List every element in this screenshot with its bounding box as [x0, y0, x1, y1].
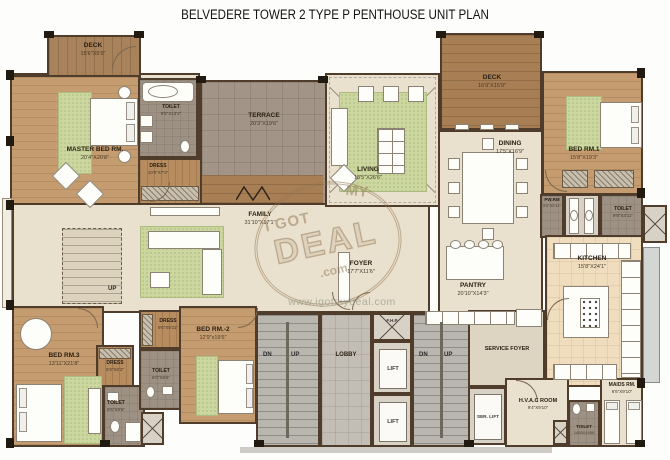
living-dims: 18'5"X26'6" [338, 175, 398, 182]
dress-bed3-name: DRESS [106, 360, 123, 366]
deck-left-label: DECK15'6"X5'9" [55, 42, 131, 58]
maids-bed-pillow [606, 402, 618, 410]
plan-title: BELVEDERE TOWER 2 TYPE P PENTHOUSE UNIT … [47, 7, 623, 22]
master-bed-name: MASTER BED RM. [67, 146, 124, 153]
toilet-master-dims: 9'8"X13'2" [146, 111, 196, 117]
bed-pillow [246, 388, 253, 408]
family-label: FAMILY31'10"X17'1" [225, 211, 295, 227]
toilet-bed1-dims: 9'9"X3'11" [604, 213, 642, 219]
dining-chair [482, 228, 494, 240]
pantry-chair [492, 240, 503, 249]
dress-bed3-label: DRESS6'8"X6'2" [97, 360, 133, 373]
family-name: FAMILY [248, 211, 271, 218]
deck-rail-post [505, 124, 519, 130]
bed2-name: BED RM.-2 [196, 326, 229, 333]
service-foyer-label: SERVICE FOYER [470, 346, 544, 353]
bed3-name: BED RM.3 [48, 352, 79, 359]
ground-shadow [240, 447, 552, 453]
bed-pillow [246, 364, 253, 384]
pantry-name: PANTRY [460, 282, 486, 289]
stair-right-dn: DN [419, 352, 428, 358]
wc-icon [572, 403, 581, 415]
bed2-dims: 12'9"x19'6" [182, 335, 244, 342]
left-balcony-ledge [2, 198, 12, 308]
bed1-dims: 15'8"X19'3" [546, 155, 622, 162]
kitchen-counter-right [621, 260, 641, 378]
column [6, 438, 14, 448]
wc-icon [585, 210, 593, 221]
hvac-name: H.V.A.C ROOM [519, 398, 557, 404]
pantry-dims: 20'10"X14'3" [443, 291, 503, 298]
folding-door-icon [236, 186, 270, 201]
pw-rm-dims: 5'0"X5'11" [538, 203, 566, 208]
family-ottoman [150, 272, 170, 288]
toilet-bed2-name: TOILET [152, 368, 170, 374]
maids-name: MAIDS RM. [609, 382, 636, 388]
sink-icon [140, 131, 153, 143]
pantry-counter [425, 311, 515, 325]
column [6, 200, 14, 210]
bed-pillow [19, 412, 27, 432]
right-service-ledge [643, 247, 660, 383]
round-table-icon [20, 318, 52, 350]
wc-icon [570, 210, 578, 221]
hvac-dims: 9'4"X9'10" [508, 405, 568, 411]
stair-right-up: UP [444, 352, 452, 358]
stair-rail [286, 322, 289, 438]
column [534, 31, 544, 38]
maids-bed-pillow [628, 402, 640, 410]
lift-1-label: LIFT [387, 366, 399, 372]
dining-chair [448, 206, 460, 218]
deck-right-name: DECK [483, 74, 501, 81]
bed2-rug [196, 356, 218, 416]
fhp-name: F.H.P [386, 318, 397, 323]
toilet-bed3-dims: 6'5"X9'6" [98, 407, 134, 413]
toilet-bed2-label: TOILET6'0"X9'6" [143, 368, 179, 381]
sink-icon [162, 386, 173, 395]
bed-pillow [126, 102, 135, 120]
dress-master-dims: 10'0"X7'3" [130, 170, 186, 176]
sink-icon [586, 403, 595, 412]
bed1-rug [566, 96, 602, 150]
bed-pillow [631, 127, 639, 144]
bed-pillow [631, 106, 639, 123]
column [318, 76, 328, 83]
column [6, 136, 14, 146]
dress-bed3-dims: 6'8"X6'2" [97, 367, 133, 373]
toilet-bed3-label: TOILET6'5"X9'6" [98, 400, 134, 413]
column [134, 31, 144, 38]
pantry-chair [450, 240, 461, 249]
toilet-master-label: TOILET9'8"X13'2" [146, 104, 196, 117]
dining-name: DINING [499, 140, 522, 147]
watermark-url: www.igotmydeal.com [262, 296, 422, 308]
wc-icon [146, 386, 155, 398]
terrace-name: TERRACE [248, 112, 279, 119]
tub-basin [148, 85, 178, 98]
toilet-master-name: TOILET [162, 104, 180, 110]
kitchen-name: KITCHEN [578, 255, 607, 262]
kitchen-counter-bottom [553, 364, 617, 380]
dining-table [462, 152, 514, 224]
lift-car-1: LIFT [379, 349, 407, 389]
lift-2-label: LIFT [387, 419, 399, 425]
toilet-bed3-name: TOILET [107, 400, 125, 406]
deck-rail-post [480, 124, 494, 130]
dress-master-name: DRESS [149, 163, 166, 169]
wc-icon [110, 420, 120, 433]
column [637, 68, 645, 78]
bed3-dims: 13'11"X21'8" [28, 361, 100, 368]
toilet-service-dims: 1400X1950 [566, 430, 602, 435]
bed2-label: BED RM.-212'9"x19'6" [182, 326, 244, 342]
deck-right-label: DECK16'9"X15'9" [452, 74, 532, 90]
toilet-bed1-label: TOILET9'9"X3'11" [604, 206, 642, 219]
stair-left-dn: DN [263, 352, 272, 358]
toilet-bed2-dims: 6'0"X9'6" [143, 375, 179, 381]
lift-car-2: LIFT [379, 402, 407, 442]
service-foyer-name: SERVICE FOYER [485, 346, 530, 352]
dining-dims: 17'5"X16'9" [478, 149, 542, 156]
tv-console [150, 207, 220, 216]
wardrobe-hatch [594, 170, 634, 188]
column [436, 31, 446, 38]
lobby-name: LOBBY [336, 352, 357, 358]
terrace-dims: 20'3"X19'6" [222, 121, 306, 128]
hob-icon [580, 298, 600, 328]
foyer-name: FOYER [350, 260, 372, 267]
service-lift-label: SER. LIFT [477, 414, 499, 419]
living-armchair [383, 86, 399, 102]
dining-chair [448, 158, 460, 170]
pw-rm-label: PW.RM5'0"X5'11" [538, 197, 566, 208]
hvac-label: H.V.A.C ROOM9'4"X9'10" [508, 398, 568, 411]
internal-stair-up: UP [108, 286, 116, 292]
bed-pillow [19, 388, 27, 408]
pantry-table [446, 246, 504, 280]
maids-label: MAIDS RM.6'6"X9'10" [600, 382, 644, 395]
column [637, 188, 645, 198]
dress-bed2-name: DRESS [159, 318, 176, 324]
pw-rm-name: PW.RM [544, 197, 559, 202]
maids-dims: 6'6"X9'10" [600, 389, 644, 395]
foyer-label: FOYER17'7"X11'6" [332, 260, 390, 276]
room-lobby [320, 313, 372, 447]
kitchen-dims: 15'8"X24'1" [550, 264, 634, 271]
bed1-name: BED RM.1 [568, 146, 599, 153]
kitchen-label: KITCHEN15'8"X24'1" [550, 255, 634, 271]
dining-chair [448, 182, 460, 194]
terrace-label: TERRACE20'3"X19'6" [222, 112, 306, 128]
living-armchair [358, 86, 374, 102]
family-dims: 31'10"X17'1" [225, 220, 295, 227]
dining-chair [516, 206, 528, 218]
master-bed-dims: 20'4"X20'8" [50, 155, 140, 162]
foyer-dims: 17'7"X11'6" [332, 269, 390, 276]
column [44, 31, 54, 38]
column [254, 440, 264, 447]
pantry-label: PANTRY20'10"X14'3" [443, 282, 503, 298]
lift-duct-right [643, 205, 667, 243]
lobby-label: LOBBY [320, 351, 372, 359]
column [6, 70, 14, 80]
bed-pillow [126, 124, 135, 142]
toilet-service-name: TOILET [576, 424, 592, 429]
dress-master-label: DRESS10'0"X7'3" [130, 163, 186, 176]
deck-left-name: DECK [84, 42, 102, 49]
toilet-service-label: TOILET1400X1950 [566, 424, 602, 435]
service-lift-car: SER. LIFT [474, 394, 502, 440]
deck-left-dims: 15'6"X5'9" [55, 51, 131, 58]
deck-rail-post [455, 124, 469, 130]
side-table-icon [118, 86, 131, 99]
shower-icon [125, 422, 141, 442]
bed1-label: BED RM.115'8"X19'3" [546, 146, 622, 162]
living-name: LIVING [357, 166, 379, 173]
wardrobe-hatch [99, 348, 131, 359]
living-sofa [331, 108, 348, 166]
internal-stair [62, 228, 122, 304]
pantry-chair [464, 240, 475, 249]
living-armchair [408, 86, 424, 102]
stair-left-up: UP [291, 352, 299, 358]
living-label: LIVING18'5"X26'6" [338, 166, 398, 182]
stair-rail [440, 322, 443, 438]
toilet-bed1-name: TOILET [614, 206, 632, 212]
pantry-cabinet [516, 309, 542, 327]
fhp-label: F.H.P [374, 318, 410, 324]
family-sofa [202, 249, 222, 295]
dining-label: DINING17'5"X16'9" [478, 140, 542, 156]
wc-icon [180, 140, 190, 153]
dining-chair [516, 182, 528, 194]
bed3-label: BED RM.313'11"X21'8" [28, 352, 100, 368]
column [635, 440, 645, 447]
deck-right-dims: 16'9"X15'9" [452, 83, 532, 90]
pantry-chair [478, 240, 489, 249]
column [100, 440, 110, 447]
column [464, 440, 474, 447]
dining-chair [516, 158, 528, 170]
master-bed-label: MASTER BED RM.20'4"X20'8" [50, 146, 140, 162]
column [196, 76, 206, 83]
floor-plan-page: { "title": "BELVEDERE TOWER 2 TYPE P PEN… [0, 0, 670, 460]
column [6, 300, 14, 310]
family-sofa [148, 231, 220, 249]
duct-shaft [141, 412, 164, 445]
